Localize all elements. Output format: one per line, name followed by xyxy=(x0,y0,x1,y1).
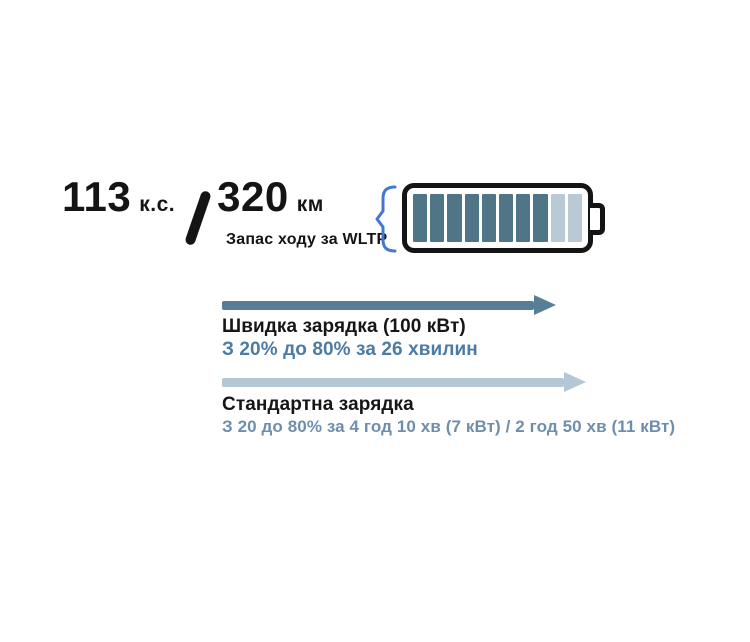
battery-terminal xyxy=(590,203,605,235)
range-value: 320 xyxy=(217,176,289,218)
standard-charge-subtitle: З 20 до 80% за 4 год 10 хв (7 кВт) / 2 г… xyxy=(222,417,675,437)
battery-segment xyxy=(533,194,547,242)
ev-spec-infographic: 113 к.с. 320 км Запас ходу за WLTP Швидк… xyxy=(0,0,750,642)
battery-segment xyxy=(482,194,496,242)
fast-charge-arrow-head xyxy=(534,295,556,315)
standard-charge-arrow-head xyxy=(564,372,586,392)
brace-icon xyxy=(373,184,399,254)
standard-charge-arrow-icon xyxy=(222,372,586,392)
standard-charge-title: Стандартна зарядка xyxy=(222,394,414,416)
battery-segment xyxy=(430,194,444,242)
fast-charge-subtitle: З 20% до 80% за 26 хвилин xyxy=(222,339,478,361)
battery-segment xyxy=(465,194,479,242)
range-caption: Запас ходу за WLTP xyxy=(226,231,387,249)
fast-charge-arrow-icon xyxy=(222,295,556,315)
battery-segment xyxy=(413,194,427,242)
power-value: 113 xyxy=(62,176,131,218)
brace-path xyxy=(377,187,395,251)
fast-charge-title: Швидка зарядка (100 кВт) xyxy=(222,316,466,338)
battery-icon xyxy=(402,183,593,253)
battery-segment xyxy=(568,194,582,242)
range-unit: км xyxy=(297,193,324,217)
fast-charge-arrow-shaft xyxy=(222,301,534,310)
standard-charge-arrow-shaft xyxy=(222,378,564,387)
power-unit: к.с. xyxy=(139,193,175,217)
slash-separator-icon xyxy=(184,190,212,246)
battery-segment xyxy=(551,194,565,242)
battery-segment xyxy=(499,194,513,242)
battery-segment xyxy=(516,194,530,242)
battery-segment xyxy=(447,194,461,242)
